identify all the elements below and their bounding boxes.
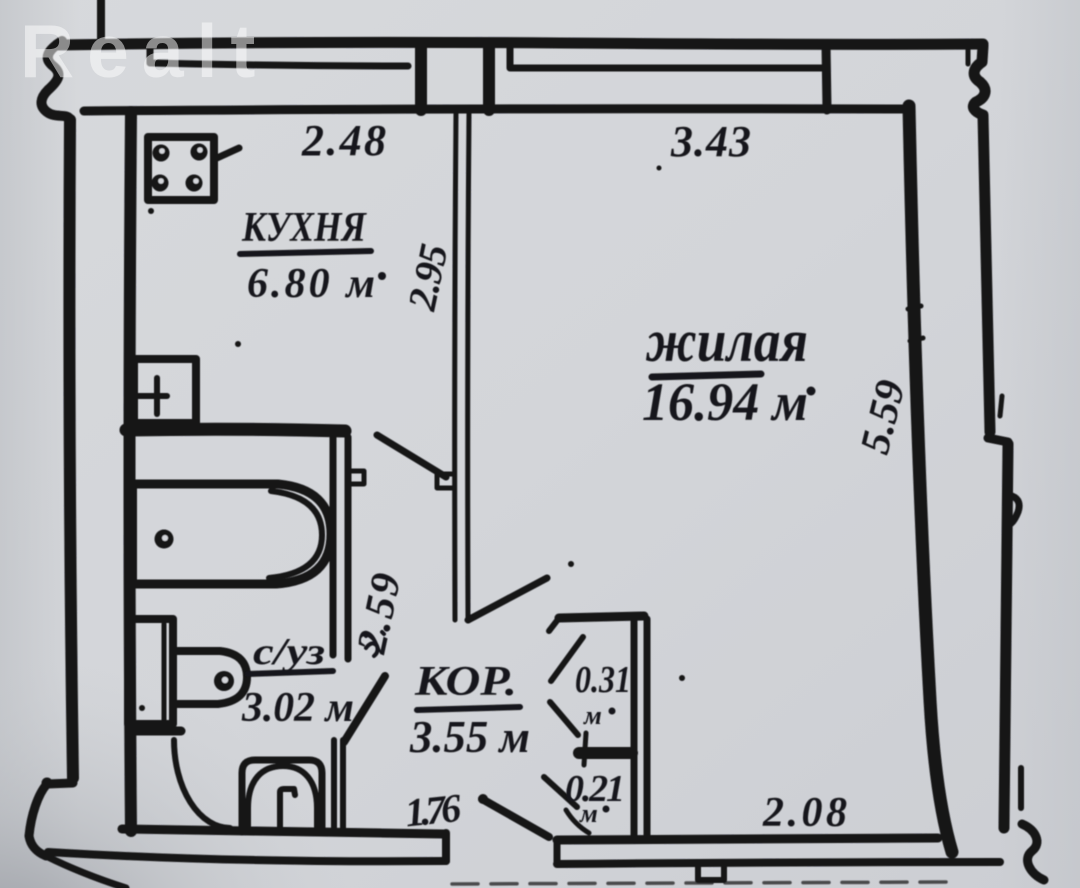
svg-text:м: м [579,799,598,828]
svg-text:6.80 м: 6.80 м [247,261,375,307]
svg-text:3.55 м: 3.55 м [409,712,530,762]
svg-text:КОР.: КОР. [414,659,517,705]
svg-text:3.43: 3.43 [670,117,751,166]
svg-text:1.76: 1.76 [403,785,463,836]
svg-text:м: м [583,701,602,730]
svg-text:3.02 м: 3.02 м [241,685,354,731]
svg-text:2.08: 2.08 [762,790,847,836]
svg-text:Realt: Realt [20,9,268,93]
svg-text:16.94 м: 16.94 м [642,372,808,432]
svg-text:с/уз: с/уз [253,631,325,673]
svg-text:жилая: жилая [645,308,808,374]
svg-text:0.31: 0.31 [575,659,631,701]
svg-text:2.48: 2.48 [301,116,386,165]
svg-text:КУХНЯ: КУХНЯ [241,205,367,251]
